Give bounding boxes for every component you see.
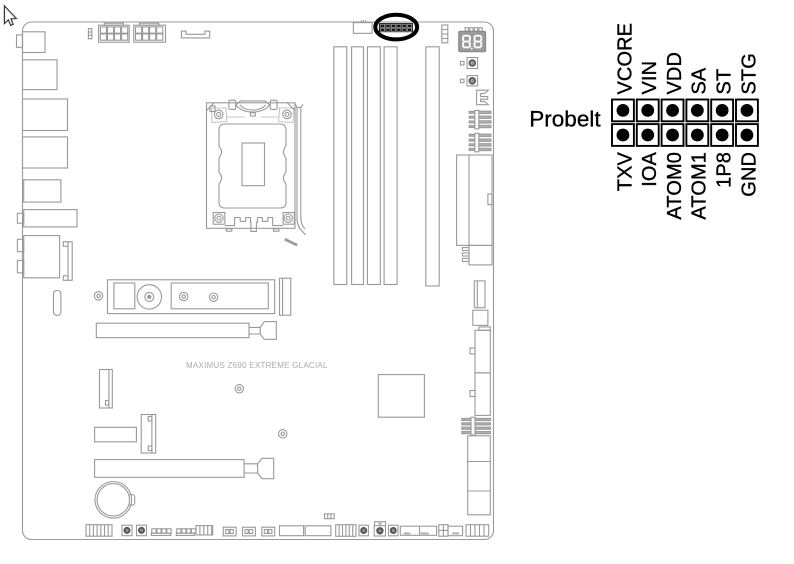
svg-text:STG: STG [738, 53, 760, 94]
svg-text:GND: GND [738, 152, 760, 197]
svg-text:VDD: VDD [664, 52, 686, 95]
svg-text:ATOM1: ATOM1 [689, 152, 711, 220]
svg-text:MAXIMUS Z690 EXTREME GLACIAL: MAXIMUS Z690 EXTREME GLACIAL [186, 361, 328, 370]
svg-text:ATOM0: ATOM0 [664, 152, 686, 220]
svg-text:VCORE: VCORE [614, 23, 636, 95]
svg-text:Probelt: Probelt [529, 106, 601, 131]
svg-text:IOA: IOA [639, 151, 661, 186]
svg-text:TXV: TXV [614, 151, 636, 191]
svg-text:1P8: 1P8 [714, 152, 736, 188]
svg-text:SA: SA [689, 67, 711, 94]
svg-text:VIN: VIN [639, 61, 661, 95]
svg-text:ST: ST [714, 69, 736, 95]
